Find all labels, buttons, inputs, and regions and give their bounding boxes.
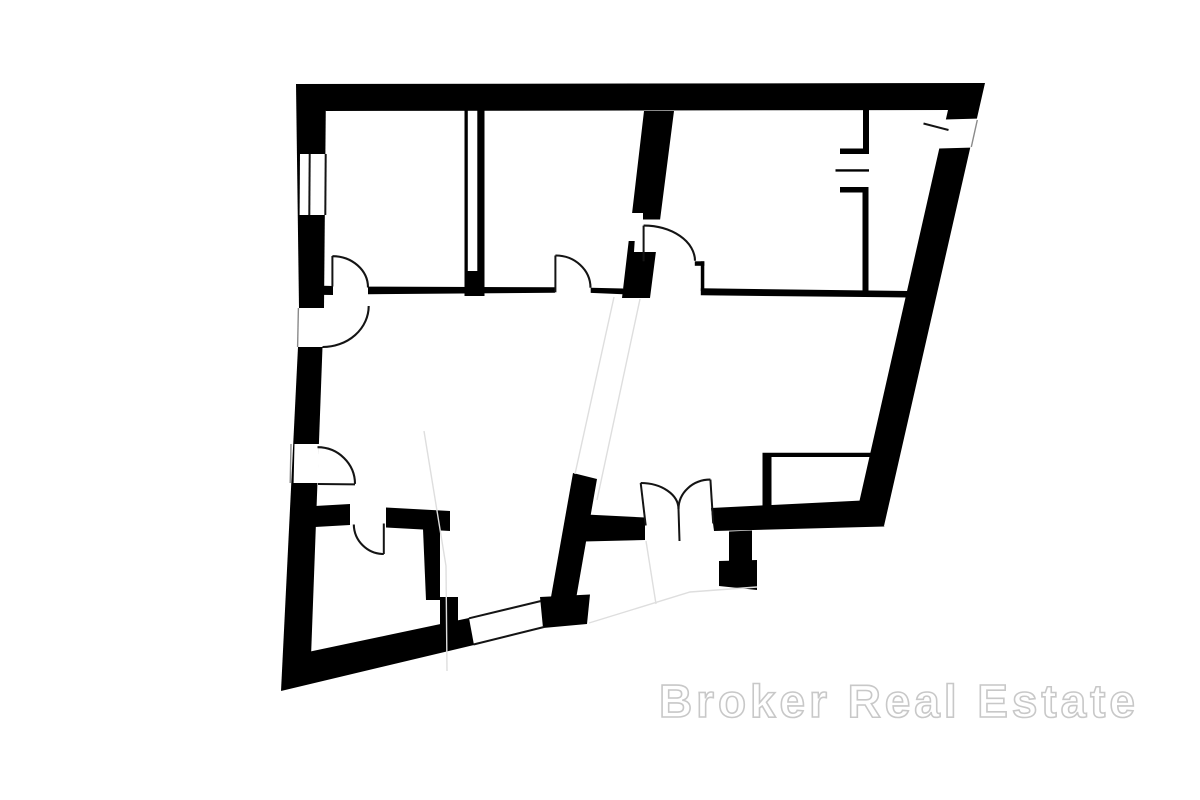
- svg-text:Broker Real Estate: Broker Real Estate: [659, 675, 1135, 727]
